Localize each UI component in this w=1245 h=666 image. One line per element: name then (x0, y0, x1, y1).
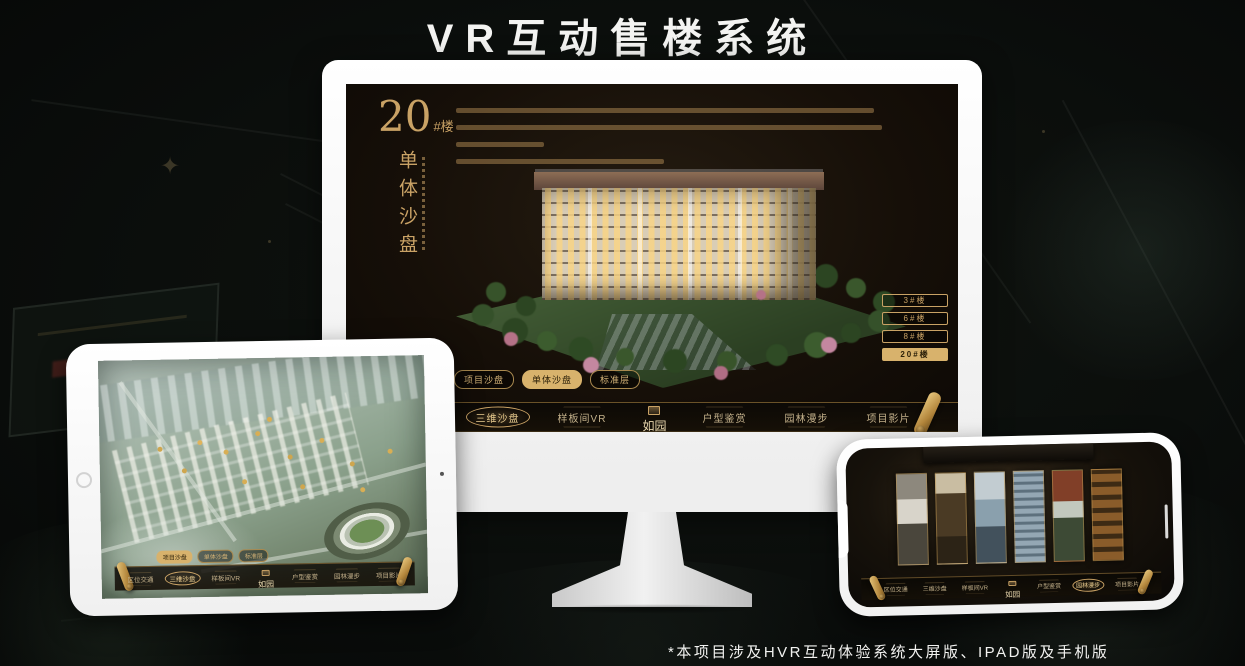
building-button[interactable]: 3#楼 (882, 294, 948, 307)
brand-logo-text: 如园 (642, 420, 666, 432)
map-marker-dot (268, 240, 271, 243)
subtitle-caption-decor (422, 154, 425, 250)
nav-item[interactable]: 项目影片 (1113, 578, 1141, 590)
tab-single-sandtable[interactable]: 单体沙盘 (198, 550, 234, 564)
gallery-panels (846, 467, 1174, 566)
nav-item[interactable]: 户型鉴赏 (696, 408, 752, 427)
building-3d-render[interactable] (446, 164, 916, 394)
nav-item[interactable]: 项目影片 (860, 408, 916, 427)
nav-item[interactable]: 样板间VR (552, 408, 613, 427)
building-facade (542, 188, 816, 300)
nav-item[interactable]: 三维沙盘 (921, 582, 949, 594)
floor-tabs: 项目沙盘 单体沙盘 标准层 (454, 370, 640, 389)
trees-decor (472, 304, 494, 326)
tablet-mockup: 项目沙盘 单体沙盘 标准层 区位交通 三维沙盘 样板间VR 如园 户型鉴赏 园林… (66, 338, 459, 617)
tablet-home-button[interactable] (76, 472, 92, 488)
monitor-stand (552, 512, 752, 607)
tab-standard-floor[interactable]: 标准层 (590, 370, 640, 389)
building-button[interactable]: 6#楼 (882, 312, 948, 325)
poster-canvas: ✦ VR互动售楼系统 20#楼 单体沙盘 (0, 0, 1245, 666)
nav-item-highlighted[interactable]: 三维沙盘 (470, 408, 526, 427)
page-title: VR互动售楼系统 (0, 6, 1245, 64)
gallery-panel[interactable] (896, 473, 929, 566)
description-line (456, 142, 544, 147)
nav-item[interactable]: 区位交通 (125, 572, 155, 585)
building-number-label: 20#楼 (378, 92, 454, 141)
interior-lintel-decor (923, 443, 1093, 463)
tablet-screen: 项目沙盘 单体沙盘 标准层 区位交通 三维沙盘 样板间VR 如园 户型鉴赏 园林… (98, 355, 428, 599)
brand-logo-text: 如园 (258, 581, 274, 589)
building-number: 20 (378, 92, 431, 141)
footnote: *本项目涉及HVR互动体验系统大屏版、IPAD版及手机版 (668, 641, 1109, 662)
tab-standard-floor[interactable]: 标准层 (239, 549, 269, 563)
phone-notch (837, 499, 848, 557)
nav-item-highlighted[interactable]: 三维沙盘 (167, 572, 197, 585)
monitor-stand-shadow (548, 604, 756, 614)
tab-project-sandtable[interactable]: 项目沙盘 (157, 550, 193, 564)
background-map-road (31, 99, 328, 143)
seal-icon (262, 570, 270, 576)
building-selector: 3#楼 6#楼 8#楼 20#楼 (882, 294, 948, 366)
gallery-panel[interactable] (1091, 468, 1124, 561)
stadium-decor (317, 492, 417, 569)
nav-item[interactable]: 户型鉴赏 (290, 570, 320, 583)
gallery-panel[interactable] (974, 471, 1007, 564)
nav-item[interactable]: 户型鉴赏 (1035, 580, 1063, 592)
phone-screen: 区位交通 三维沙盘 样板间VR 如园 户型鉴赏 园林漫步 项目影片 (845, 441, 1175, 607)
nav-item[interactable]: 园林漫步 (778, 408, 834, 427)
brand-logo: 如园 (258, 564, 274, 589)
brand-logo: 如园 (1005, 574, 1021, 599)
tablet-bottom-nav: 区位交通 三维沙盘 样板间VR 如园 户型鉴赏 园林漫步 项目影片 (115, 561, 415, 590)
gallery-panel[interactable] (935, 472, 968, 565)
seal-icon (648, 406, 660, 415)
nav-item[interactable]: 样板间VR (960, 581, 991, 593)
tab-single-sandtable[interactable]: 单体沙盘 (522, 370, 582, 389)
scroll-ornament-icon (912, 390, 943, 432)
tablet-floor-tabs: 项目沙盘 单体沙盘 标准层 (157, 549, 269, 564)
map-marker-dot (1042, 130, 1045, 133)
phone-bottom-nav: 区位交通 三维沙盘 样板间VR 如园 户型鉴赏 园林漫步 项目影片 (861, 572, 1161, 601)
vertical-subtitle: 单体沙盘 (394, 150, 421, 262)
building-button[interactable]: 8#楼 (882, 330, 948, 343)
brand-logo-text: 如园 (1005, 591, 1020, 599)
tab-project-sandtable[interactable]: 项目沙盘 (454, 370, 514, 389)
brand-logo: 如园 (642, 403, 666, 432)
nav-item[interactable]: 园林漫步 (332, 569, 362, 582)
nav-item[interactable]: 区位交通 (882, 583, 910, 595)
gallery-panel[interactable] (1052, 469, 1085, 562)
nav-item-highlighted[interactable]: 园林漫步 (1074, 579, 1102, 591)
building-number-badges (197, 440, 202, 445)
tablet-camera-icon (440, 472, 444, 476)
gallery-panel[interactable] (1013, 470, 1046, 563)
trees-decor (486, 282, 506, 302)
description-line (456, 125, 882, 130)
seal-icon (1008, 581, 1016, 586)
building-number-suffix: #楼 (433, 119, 453, 134)
building-button-selected[interactable]: 20#楼 (882, 348, 948, 361)
description-line (456, 108, 874, 113)
plaque-gold-line (38, 315, 187, 336)
background-aerial-patch (990, 120, 1245, 380)
nav-item[interactable]: 样板间VR (209, 571, 242, 584)
blossom-trees-decor (504, 332, 518, 346)
compass-star-icon: ✦ (160, 152, 180, 181)
phone-mockup: 区位交通 三维沙盘 样板间VR 如园 户型鉴赏 园林漫步 项目影片 (836, 432, 1184, 617)
